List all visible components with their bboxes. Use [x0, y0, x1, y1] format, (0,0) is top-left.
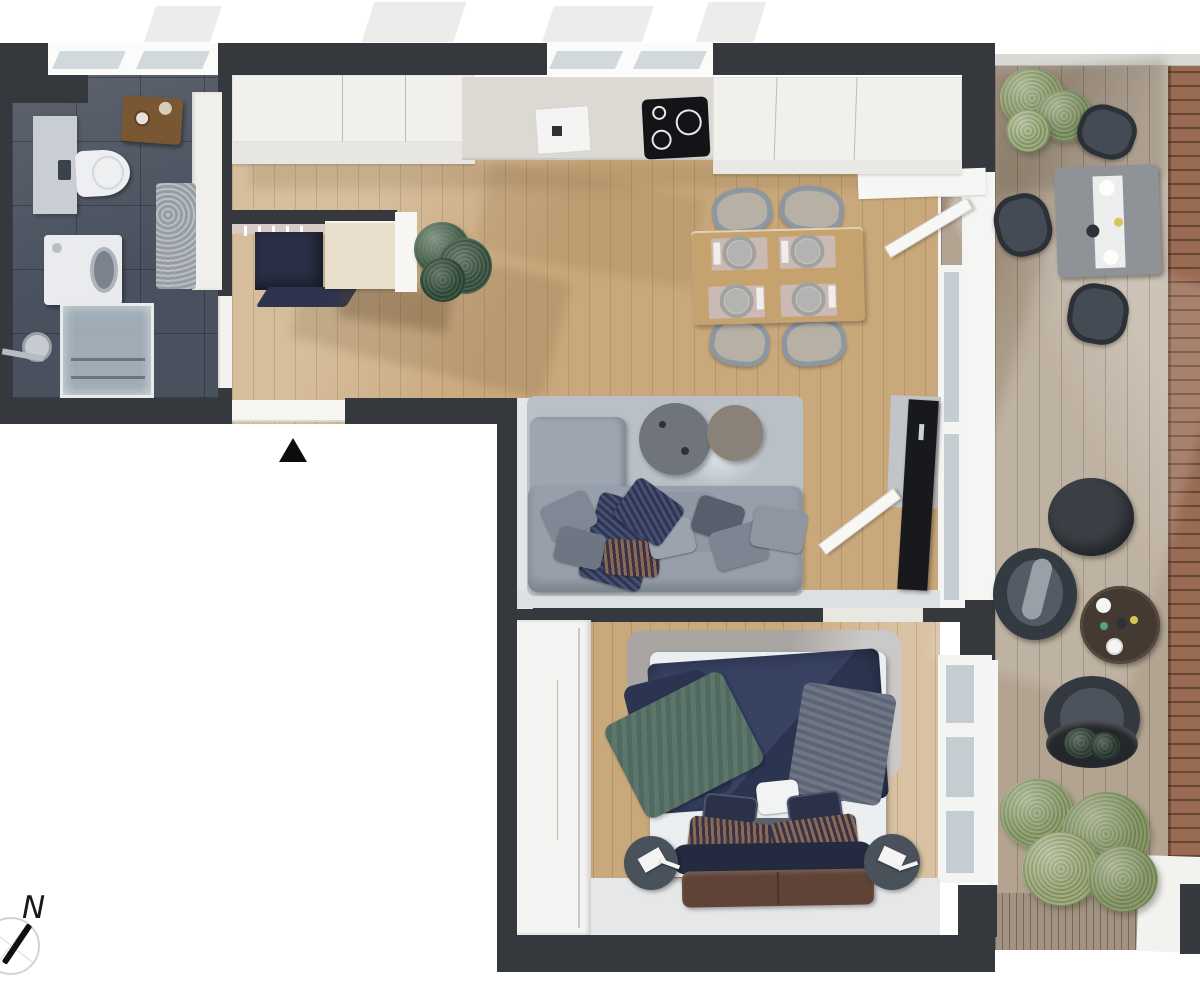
wall-top-left — [0, 43, 48, 75]
wardrobe — [517, 620, 591, 935]
entrance-marker — [279, 438, 307, 462]
kitchen-window — [547, 43, 713, 75]
terrace-shrub-bottom — [1022, 832, 1100, 906]
wall-bathroom-bottom — [0, 398, 232, 424]
dish — [1106, 638, 1123, 655]
wardrobe-seam — [578, 628, 580, 928]
roof-overhang — [362, 2, 467, 42]
floor-plan: N — [0, 0, 1200, 1000]
burner — [652, 106, 667, 121]
coat-closet-interior — [255, 232, 323, 290]
faucet — [552, 126, 562, 136]
potted-plant-leaves — [420, 258, 466, 302]
cup — [1116, 618, 1127, 629]
cabinet-seam — [853, 77, 857, 165]
bedroom-window-wall — [938, 655, 992, 883]
washer-dial — [52, 243, 62, 253]
glass-pane — [946, 737, 974, 797]
terrace-jamb — [965, 172, 995, 600]
kitchen-counter-left — [232, 142, 475, 164]
sideboard — [325, 221, 397, 289]
cooktop — [641, 96, 710, 159]
burner — [651, 129, 672, 150]
glass-pane — [946, 811, 974, 873]
burner — [675, 109, 702, 136]
toilet-seat — [91, 155, 125, 191]
wall-bottom — [497, 935, 995, 972]
bathroom-vanity — [192, 92, 222, 290]
wall-living-bedroom-right — [923, 607, 963, 622]
terrace-pouf — [1048, 478, 1134, 556]
coffee-table-large — [639, 403, 711, 475]
lemon — [1130, 616, 1138, 624]
kitchen-counter-right — [713, 160, 962, 174]
cabinet-seam — [773, 77, 777, 165]
wall-terrace-bottom-right-block — [1180, 884, 1200, 954]
window-pane — [52, 51, 126, 69]
living-glazed-wall — [938, 172, 965, 608]
kitchen-sink — [533, 104, 592, 156]
roof-overhang — [696, 2, 767, 42]
window-pane — [549, 51, 623, 69]
roof-overhang — [542, 6, 654, 42]
lime — [1100, 622, 1108, 630]
terrace-lounge-chair — [993, 548, 1077, 640]
bench-seam — [777, 872, 780, 904]
washing-machine — [44, 235, 122, 305]
exterior — [0, 424, 497, 614]
kitchen-upper-cabinets-left — [232, 75, 475, 142]
bathroom-door-opening — [218, 296, 232, 388]
washer-door — [90, 247, 118, 293]
napkin — [756, 287, 764, 309]
shelf-jar — [158, 101, 172, 115]
wall-top-main — [218, 43, 547, 75]
foot-bench — [682, 868, 875, 907]
wall-kitchen-right — [962, 75, 995, 172]
cabinet-seam — [342, 75, 343, 142]
glass-pane — [944, 272, 959, 422]
entrance-door — [232, 400, 345, 422]
shelf-clock — [134, 110, 151, 127]
compass-north-label: N — [22, 890, 45, 926]
bath-mat — [156, 183, 196, 289]
wall-bathroom-inner-stub — [12, 75, 88, 103]
sofa-pillow — [749, 504, 809, 555]
glass-pane — [944, 434, 959, 600]
terrace-side-table — [1080, 586, 1160, 664]
coffee-table-small — [707, 405, 763, 461]
glass-pane — [946, 665, 974, 723]
kitchen-upper-cabinets-right — [713, 77, 962, 165]
planter-bowl — [1046, 720, 1138, 768]
napkin — [781, 241, 789, 263]
wall-terrace-bottom-left — [958, 885, 997, 937]
wall-shelf — [120, 95, 183, 145]
terrace-shrub-top — [1006, 110, 1050, 152]
shower-rail — [71, 376, 145, 379]
window-pane — [633, 51, 707, 69]
bathroom-window — [48, 43, 218, 75]
tv-logo — [918, 424, 924, 440]
wall-left-main — [497, 398, 517, 938]
wall-right-mid-block — [960, 600, 995, 660]
woven-blanket — [787, 681, 897, 806]
cabinet-seam — [405, 75, 406, 142]
outdoor-dining-table — [1054, 164, 1162, 278]
roof-overhang — [144, 6, 222, 42]
shower — [60, 303, 154, 398]
hanger — [244, 226, 247, 236]
window-pane — [136, 51, 210, 69]
table-decor — [681, 447, 689, 455]
flush-plate — [58, 160, 71, 180]
wall-hall-bottom-right — [345, 398, 510, 424]
cup — [1096, 598, 1111, 613]
wall-top-right — [713, 43, 995, 75]
planter-leaves — [1090, 732, 1120, 760]
shower-rail — [71, 358, 145, 361]
napkin — [713, 243, 721, 265]
napkin — [828, 286, 836, 308]
wardrobe-seam — [557, 680, 558, 840]
terrace-shrub-bottom — [1088, 846, 1158, 912]
wall-bathroom-right-lower — [218, 387, 232, 400]
dining-table — [691, 227, 865, 325]
table-decor — [659, 421, 666, 428]
bedroom-door-opening — [823, 607, 923, 622]
